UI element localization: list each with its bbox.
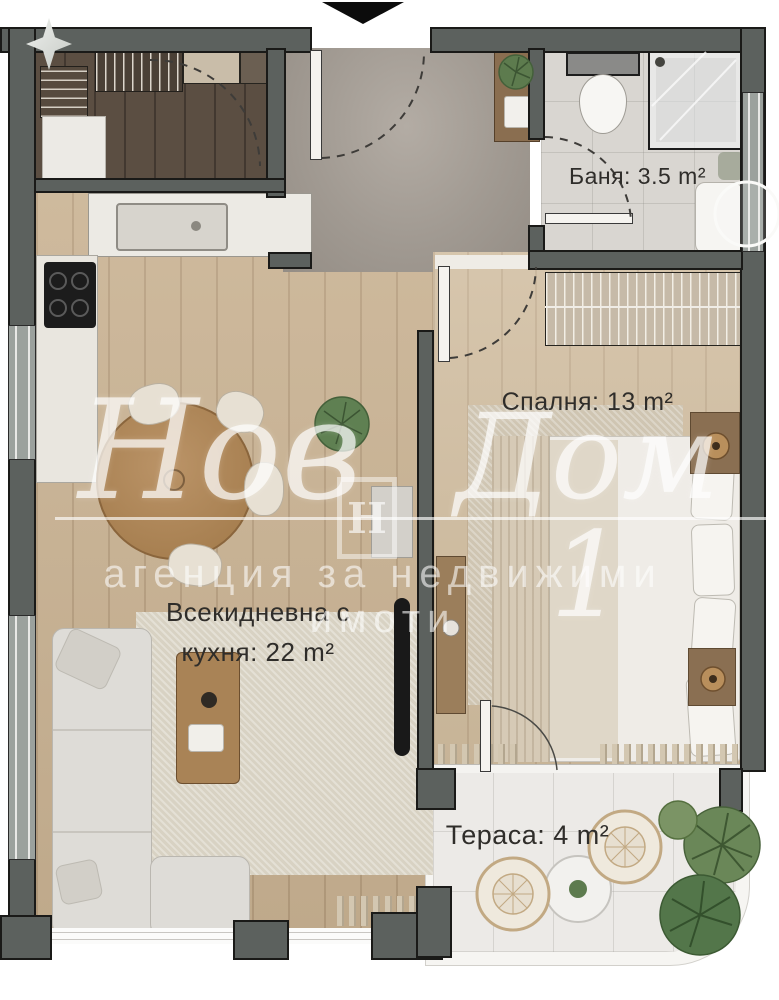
window-bathroom [742, 92, 764, 252]
bed-throw-blanket [550, 440, 618, 758]
wall-closet-pier [266, 48, 286, 198]
wall-bottom-pier [233, 920, 289, 960]
bed-foot-bench [492, 436, 550, 762]
living-room-label-line2: кухня: 22 m² [148, 632, 368, 672]
kitchen-sink [116, 203, 228, 251]
shower-cabin [648, 50, 744, 150]
wall-hall-stub [268, 252, 312, 269]
sofa-pillow [54, 858, 103, 906]
entrance-marker-icon [322, 2, 404, 24]
fridge [42, 116, 106, 182]
nightstand [690, 412, 740, 474]
wall-closet-bottom [34, 178, 286, 193]
toilet-cistern [566, 52, 640, 76]
wall-terrace-pier [416, 768, 456, 810]
wall-bath-left-upper [528, 48, 545, 140]
terrace-label: Тераса: 4 m² [440, 820, 615, 851]
nightstand [688, 648, 736, 706]
terrace-door-leaf [480, 700, 491, 772]
wall-bedroom-top [528, 250, 743, 270]
closet-wardrobe-hangers [95, 50, 183, 92]
bed-pillow [691, 523, 735, 596]
floor-plan: Баня: 3.5 m² Спалня: 13 m² Всекидневна с… [0, 0, 779, 1000]
wall-tv-partition [417, 330, 434, 772]
window-left-lower [8, 615, 36, 860]
terrace-floor [433, 772, 736, 952]
entry-door-leaf [310, 50, 322, 160]
bedroom-dresser [436, 556, 466, 714]
coffee-table-tray [188, 724, 224, 752]
wall-terrace-pier [416, 886, 452, 958]
cooktop [44, 262, 96, 328]
bedroom-door-leaf [438, 266, 450, 362]
wall-terrace-pier [719, 768, 743, 812]
tv-media-cabinet [371, 486, 413, 558]
washbasin [695, 182, 743, 254]
wall-top-right [430, 27, 743, 53]
dining-chair [244, 462, 284, 516]
bedroom-label: Спалня: 13 m² [480, 388, 695, 417]
living-room-label: Всекидневна с кухня: 22 m² [148, 592, 368, 673]
tv-screen [394, 598, 410, 756]
bathroom-label: Баня: 3.5 m² [545, 163, 730, 190]
closet-side-rail [40, 66, 88, 118]
wardrobe-rod [545, 306, 741, 308]
bedroom-wardrobe [545, 272, 741, 346]
bathroom-door-leaf [545, 213, 633, 224]
wall-bottom-pier [0, 915, 52, 960]
living-room-label-line1: Всекидневна с [148, 592, 368, 632]
window-left-upper [8, 325, 36, 460]
closet-cabinet [183, 50, 240, 84]
